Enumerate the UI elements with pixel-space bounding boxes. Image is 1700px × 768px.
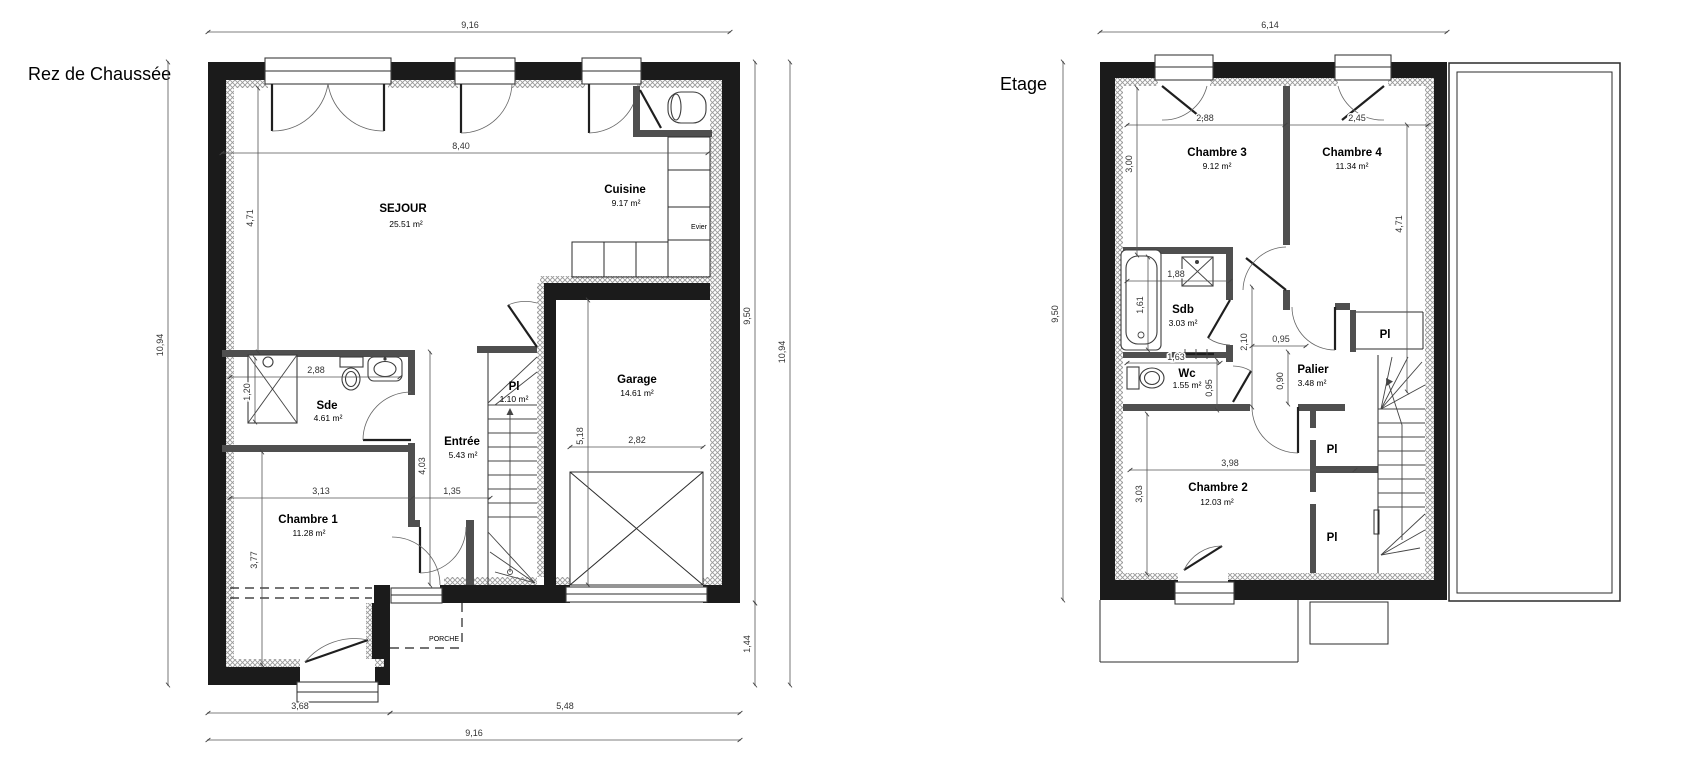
room-area-chambre1: 11.28 m²	[293, 528, 326, 538]
room-area-sde: 4.61 m²	[314, 413, 343, 423]
room-label-pl-milieu: Pl	[1327, 444, 1338, 456]
rdc-window-cuisine	[582, 58, 641, 133]
room-label-chambre1: Chambre 1	[278, 514, 338, 526]
room-label-chambre2: Chambre 2	[1188, 482, 1247, 494]
dim: 8,40	[452, 141, 470, 151]
dim: 1,88	[1167, 269, 1185, 279]
room-area-palier: 3.48 m²	[1298, 378, 1327, 388]
rdc-room-labels: SEJOUR 25.51 m² Cuisine 9.17 m² Evier Sd…	[278, 184, 707, 643]
etage-window-chambre2	[1175, 546, 1234, 604]
room-label-cuisine: Cuisine	[604, 184, 646, 196]
etage-window-chambre4	[1335, 55, 1391, 120]
room-area-wc: 1.55 m²	[1173, 380, 1202, 390]
dim: 6,14	[1261, 20, 1279, 30]
dim: 10,94	[155, 334, 165, 357]
etage-chambre2-door	[1252, 407, 1298, 453]
dim: 9,16	[465, 728, 483, 738]
rdc-entrance-door	[391, 537, 442, 603]
dim: 1,61	[1135, 296, 1145, 314]
dim: 3,77	[249, 551, 259, 569]
rdc-garage-door	[566, 472, 707, 603]
room-label-pl-haut: Pl	[1380, 329, 1391, 341]
etage-roof-outline	[1449, 63, 1620, 601]
room-label-sde: Sde	[316, 400, 337, 412]
dim: 5,48	[556, 701, 574, 711]
dim: 3,98	[1221, 458, 1239, 468]
rdc-kitchen-counter	[572, 137, 710, 277]
rdc-plan: Rez de Chaussée	[28, 20, 790, 740]
etage-shower-icon	[1182, 257, 1213, 286]
room-area-cuisine: 9.17 m²	[612, 198, 641, 208]
etage-room-labels: Chambre 3 9.12 m² Chambre 4 11.34 m² Sdb…	[1169, 147, 1391, 544]
dim: 2,10	[1239, 333, 1249, 351]
dim: 1,63	[1167, 352, 1185, 362]
dim: 3,68	[291, 701, 309, 711]
rdc-title: Rez de Chaussée	[28, 64, 171, 84]
dim: 9,50	[742, 307, 752, 325]
dim: 4,71	[1394, 215, 1404, 233]
room-area-sdb: 3.03 m²	[1169, 318, 1198, 328]
dim: 5,18	[575, 427, 585, 445]
room-label-chambre3: Chambre 3	[1187, 147, 1246, 159]
dim: 0,95	[1272, 334, 1290, 344]
dim: 4,71	[245, 209, 255, 227]
etage-title: Etage	[1000, 74, 1047, 94]
rdc-sde-door	[363, 392, 411, 440]
rdc-window-sejour	[455, 58, 515, 133]
etage-sdb-door	[1208, 300, 1230, 345]
dim: 3,00	[1124, 155, 1134, 173]
etage-toilet-icon	[1127, 367, 1164, 389]
etage-stairs	[1374, 355, 1425, 573]
dim: 3,03	[1134, 485, 1144, 503]
etage-groundfloor-outline	[1100, 600, 1388, 662]
etage-wc-door	[1233, 366, 1251, 402]
room-area-chambre2: 12.03 m²	[1200, 497, 1234, 507]
dim: 2,45	[1348, 113, 1366, 123]
dim: 0,95	[1204, 379, 1214, 397]
rdc-water-heater-closet	[633, 86, 712, 137]
room-label-sdb: Sdb	[1172, 304, 1194, 316]
room-area-entree: 5.43 m²	[449, 450, 478, 460]
room-label-palier: Palier	[1297, 364, 1329, 376]
room-label-garage: Garage	[617, 374, 657, 386]
rdc-toilet-icon	[340, 357, 363, 390]
rdc-chambre1-window	[297, 639, 378, 702]
room-area-sejour: 25.51 m²	[389, 219, 423, 229]
room-label-pl-bas: Pl	[1327, 532, 1338, 544]
dim: 4,03	[417, 457, 427, 475]
room-label-sejour: SEJOUR	[379, 203, 427, 215]
dim: 1,35	[443, 486, 461, 496]
room-label-entree: Entrée	[444, 436, 480, 448]
room-area-chambre4: 11.34 m²	[1336, 161, 1369, 171]
etage-window-chambre3	[1155, 55, 1213, 120]
label-evier: Evier	[691, 224, 708, 231]
room-area-placard: 1.10 m²	[500, 394, 529, 404]
dim: 3,13	[312, 486, 330, 496]
floorplan-sheet: Rez de Chaussée	[0, 0, 1700, 768]
room-label-placard: Pl	[509, 381, 520, 393]
rdc-french-window	[265, 58, 391, 131]
room-area-garage: 14.61 m²	[620, 388, 654, 398]
dim: 0,90	[1275, 372, 1285, 390]
room-label-wc: Wc	[1178, 368, 1196, 380]
etage-palier-door	[1292, 307, 1335, 350]
floorplan-drawing: Rez de Chaussée	[0, 0, 1700, 768]
dim: 9,16	[461, 20, 479, 30]
room-area-chambre3: 9.12 m²	[1203, 161, 1232, 171]
rdc-sejour-hall-door	[508, 301, 537, 347]
dim: 2,82	[628, 435, 646, 445]
dim: 10,94	[777, 341, 787, 364]
label-porche: PORCHE	[429, 636, 459, 643]
dim: 1,44	[742, 635, 752, 653]
dim: 2,88	[307, 365, 325, 375]
dim: 1,20	[242, 383, 252, 401]
etage-chambre3-door	[1243, 247, 1286, 290]
dim: 2,88	[1196, 113, 1214, 123]
room-label-chambre4: Chambre 4	[1322, 147, 1382, 159]
dim: 9,50	[1050, 305, 1060, 323]
etage-plan: Etage	[1000, 20, 1620, 662]
rdc-chambre1-door	[420, 527, 466, 573]
